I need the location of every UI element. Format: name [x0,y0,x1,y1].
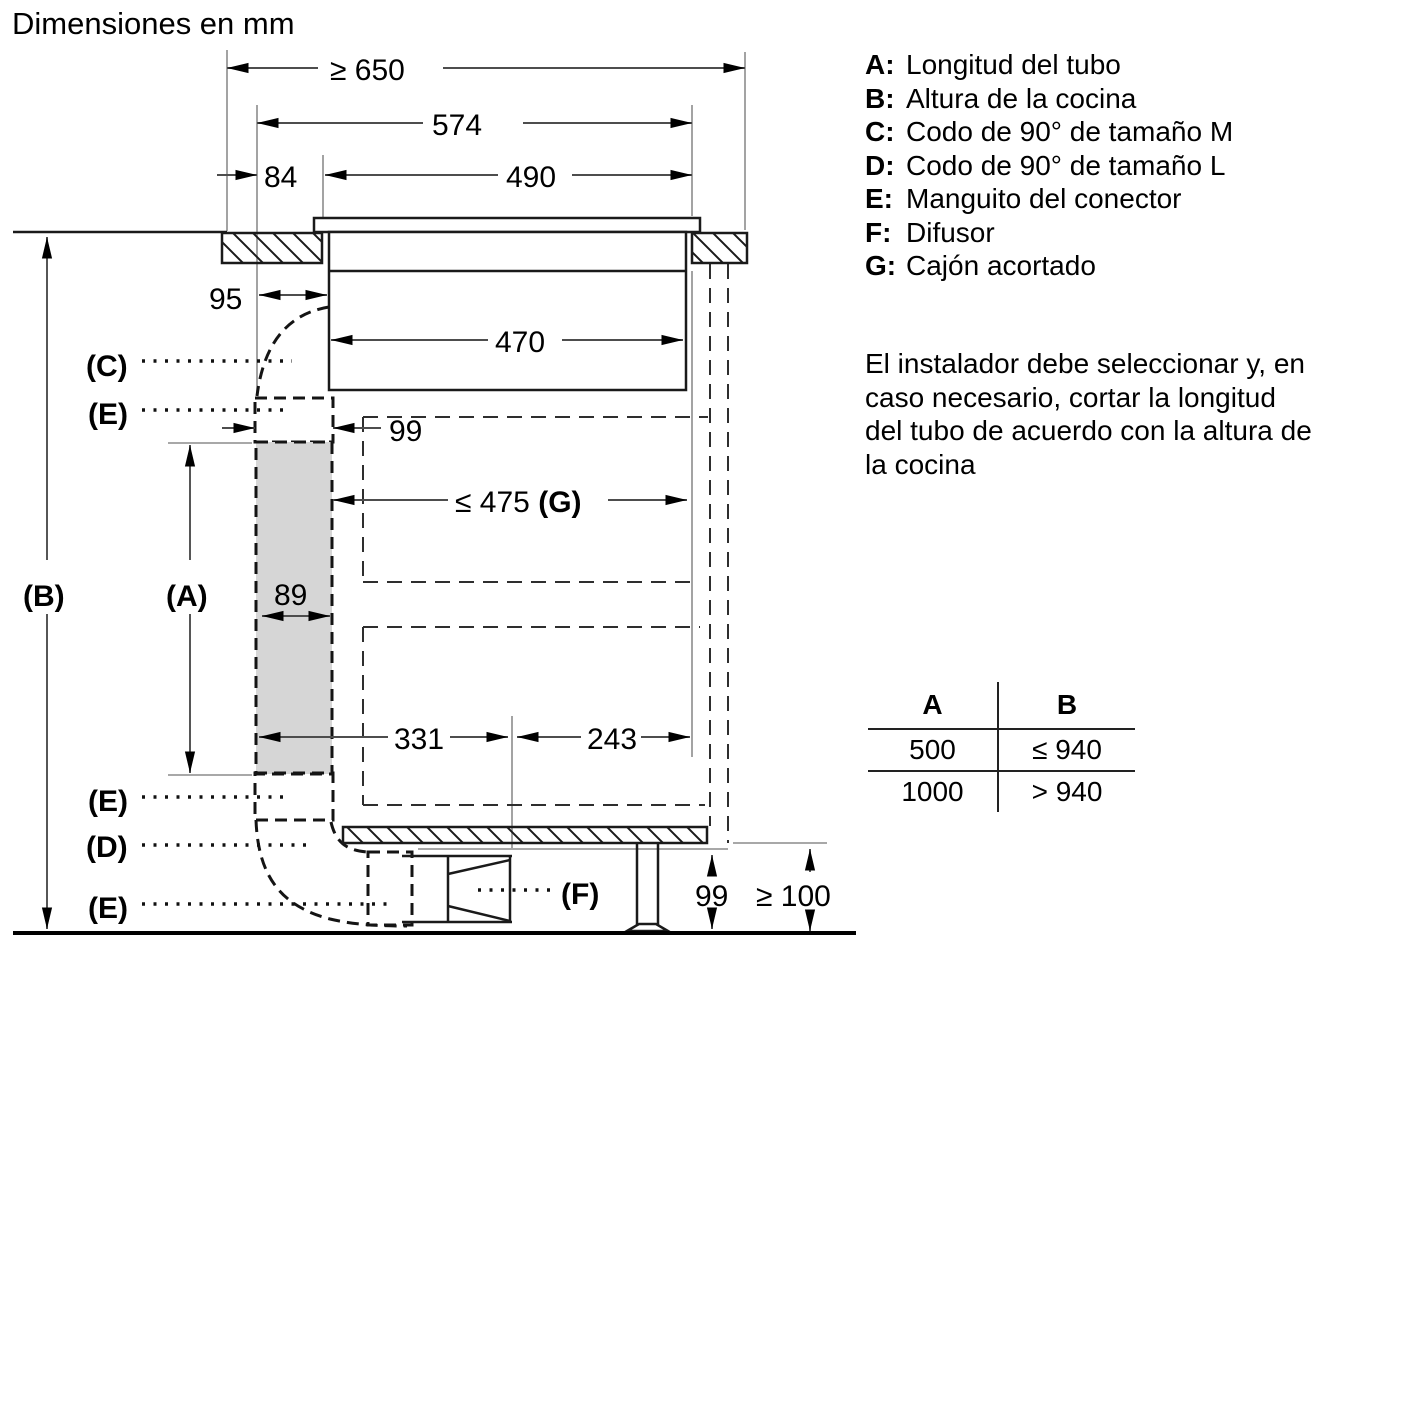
label-b: (B) [23,580,65,613]
dim-value: ≤ 475 (G) [455,486,582,519]
hob [314,218,700,390]
legend-key: A: [865,48,906,82]
legend-key: B: [865,82,906,116]
dimension-574: 574 [257,109,692,142]
dim-value: 574 [432,109,482,142]
legend-text: Difusor [906,216,995,250]
label-e-top: (E) [88,398,128,431]
diffuser-f [402,856,512,922]
label-d: (D) [86,831,128,864]
legend-item-f: F:Difusor [865,216,1233,250]
dimension-A: (A) [166,445,208,773]
dim-value: ≥ 100 [756,880,831,913]
installer-note: El instalador debe seleccionar y, en cas… [865,347,1312,481]
legend: A:Longitud del tubo B:Altura de la cocin… [865,48,1233,283]
legend-text: Altura de la cocina [906,82,1136,116]
note-line: la cocina [865,448,1312,482]
legend-item-d: D:Codo de 90° de tamaño L [865,149,1233,183]
dimension-84-490: 84 490 [217,161,692,194]
sleeve-e-mid [255,773,333,820]
dimension-100-clearance: ≥ 100 [756,849,831,931]
legend-key: D: [865,149,906,183]
sleeve-e-bottom [368,852,412,925]
label-e-mid: (E) [88,785,128,818]
page-title: Dimensiones en mm [12,6,295,42]
dim-value: ≥ 650 [330,54,405,87]
legend-item-b: B:Altura de la cocina [865,82,1233,116]
dimension-650: ≥ 650 [227,54,745,87]
dimension-99-bottom: 99 [695,855,728,929]
table-cell: > 940 [999,770,1135,812]
cabinet-base [13,827,856,933]
legend-key: G: [865,249,906,283]
hob-body [329,232,686,390]
legend-text: Longitud del tubo [906,48,1121,82]
legend-text: Codo de 90° de tamaño L [906,149,1225,183]
dim-value: 331 [394,723,444,756]
dim-value: 89 [274,579,307,612]
tube-length-table: A B 500 ≤ 940 1000 > 940 [868,682,1135,812]
dim-value: 99 [695,880,728,913]
label-c: (C) [86,350,128,383]
table-header-a: A [868,682,999,728]
dim-value: 243 [587,723,637,756]
dim-value: 470 [495,326,545,359]
legend-item-g: G:Cajón acortado [865,249,1233,283]
dim-value: 84 [264,161,297,194]
label-a: (A) [166,580,208,613]
legend-text: Manguito del conector [906,182,1182,216]
legend-text: Cajón acortado [906,249,1096,283]
legend-key: C: [865,115,906,149]
dim-value: 490 [506,161,556,194]
table-cell: 500 [868,728,999,770]
legend-text: Codo de 90° de tamaño M [906,115,1233,149]
worktop-right-section [692,233,747,263]
sleeve-e-top [255,398,333,442]
dimension-475-g: ≤ 475 (G) [333,486,687,519]
worktop-left-section [222,233,322,263]
dimension-B: (B) [23,237,65,929]
cabinet-bottom-panel [343,827,707,843]
table-cell: 1000 [868,770,999,812]
label-f: (F) [561,878,599,911]
dim-value: 99 [389,415,422,448]
note-line: El instalador debe seleccionar y, en [865,347,1312,381]
legend-item-c: C:Codo de 90° de tamaño M [865,115,1233,149]
legend-key: E: [865,182,906,216]
table-cell: ≤ 940 [999,728,1135,770]
legend-key: F: [865,216,906,250]
installation-dimensions-page: Dimensiones en mm [0,0,1406,1406]
legend-item-e: E:Manguito del conector [865,182,1233,216]
label-e-bottom: (E) [88,892,128,925]
legend-item-a: A:Longitud del tubo [865,48,1233,82]
note-line: del tubo de acuerdo con la altura de [865,414,1312,448]
hob-glass-top [314,218,700,232]
note-line: caso necesario, cortar la longitud [865,381,1312,415]
elbow-c [257,307,329,396]
table-header-b: B [999,682,1135,728]
foot-base [627,924,668,931]
dim-value: 95 [209,283,242,316]
